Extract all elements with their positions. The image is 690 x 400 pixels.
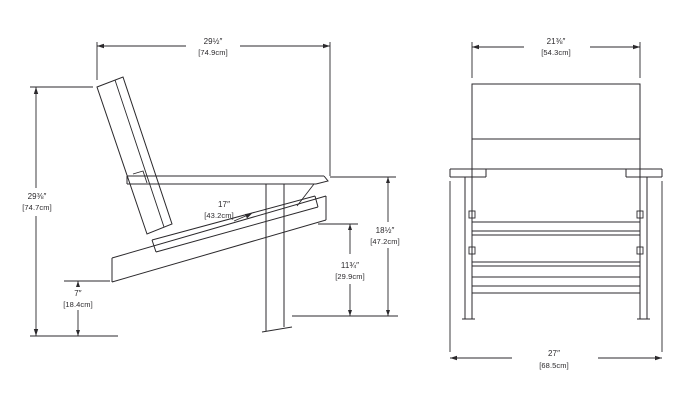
seat-depth-cm-label: [43.2cm] <box>204 211 234 220</box>
front-right-arm <box>626 169 662 177</box>
back-width-cm-label: [54.3cm] <box>541 48 571 57</box>
side-back-inner-line <box>115 80 164 227</box>
side-dim-clearance: 7″ [18.4cm] <box>63 281 110 336</box>
side-dim-depth: 29½″ [74.9cm] <box>97 37 330 176</box>
height-inches-label: 29⅜″ <box>28 192 47 201</box>
arrowhead <box>348 310 352 316</box>
arrowhead <box>633 45 640 49</box>
clearance-inches-label: 7″ <box>74 289 82 298</box>
arrowhead <box>34 87 38 94</box>
arrowhead <box>348 224 352 230</box>
seat-depth-inches-label: 17″ <box>218 200 230 209</box>
front-dim-back-width: 21⅜″ [54.3cm] <box>472 37 640 78</box>
side-dim-arm-height: 18½″ [47.2cm] <box>330 177 400 316</box>
side-back-panel <box>97 77 172 234</box>
arrowhead <box>76 281 80 287</box>
dimension-drawing: 29½″ [74.9cm] 29⅜″ [74.7cm] 17″ [43.2cm]… <box>0 0 690 400</box>
arrowhead <box>386 310 390 316</box>
front-bottom-stretcher <box>472 286 640 293</box>
depth-cm-label: [74.9cm] <box>198 48 228 57</box>
side-dim-height: 29⅜″ [74.7cm] <box>22 87 118 336</box>
side-back-notch <box>133 171 147 183</box>
arm-height-inches-label: 18½″ <box>376 226 395 235</box>
arrowhead <box>97 44 104 48</box>
front-back-panel <box>472 84 640 169</box>
arrowhead <box>323 44 330 48</box>
depth-inches-label: 29½″ <box>204 37 223 46</box>
front-right-leg <box>637 169 650 319</box>
clearance-cm-label: [18.4cm] <box>63 300 93 309</box>
front-rails <box>472 222 640 277</box>
side-dim-seat-depth: 17″ [43.2cm] <box>204 200 252 221</box>
side-arm-bracket <box>297 184 314 206</box>
arm-height-cm-label: [47.2cm] <box>370 237 400 246</box>
arrowhead <box>472 45 479 49</box>
overall-width-cm-label: [68.5cm] <box>539 361 569 370</box>
extension-line <box>450 181 662 352</box>
arrowhead <box>386 177 390 183</box>
front-view-chair <box>450 84 662 319</box>
side-seat <box>152 196 318 252</box>
front-dim-overall-width: 27″ [68.5cm] <box>450 181 662 370</box>
seat-height-cm-label: [29.9cm] <box>335 272 365 281</box>
extension-line <box>97 42 330 176</box>
height-cm-label: [74.7cm] <box>22 203 52 212</box>
overall-width-inches-label: 27″ <box>548 349 560 358</box>
arrowhead <box>34 329 38 336</box>
front-left-leg <box>462 169 475 319</box>
side-view-chair <box>97 77 328 332</box>
seat-height-inches-label: 11¾″ <box>341 261 359 270</box>
back-width-inches-label: 21⅜″ <box>547 37 566 46</box>
arrowhead <box>76 330 80 336</box>
arrowhead <box>655 356 662 360</box>
front-left-arm <box>450 169 486 177</box>
arrowhead <box>450 356 457 360</box>
